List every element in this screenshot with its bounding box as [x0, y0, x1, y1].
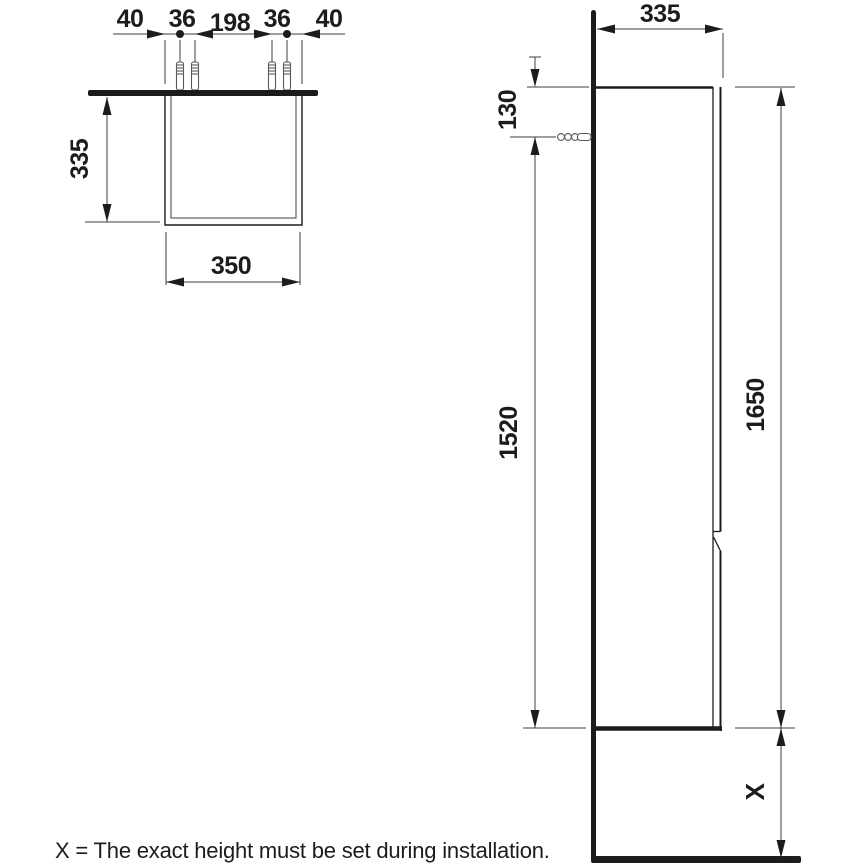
anchor-dowel	[192, 62, 199, 90]
dim-label-height-below-anchor: 1520	[495, 406, 523, 460]
arrowhead	[282, 278, 300, 287]
dim-label-plan-width: 350	[211, 252, 251, 280]
floor-clearance-dimension: X	[740, 728, 786, 858]
arrowhead	[531, 137, 540, 155]
cabinet-outline-elevation	[596, 87, 722, 731]
arrowhead	[531, 69, 540, 87]
installation-drawing: 40 36 198 36 40	[0, 0, 868, 868]
elevation-view: 335 130	[494, 0, 801, 863]
anchor-dowel	[284, 62, 291, 90]
plan-dim-chain: 40 36 198 36 40	[113, 5, 345, 84]
caption: X = The exact height must be set during …	[55, 838, 550, 863]
wall-elevation	[591, 10, 596, 860]
total-height-dimension: 1650	[735, 87, 795, 728]
arrowhead	[777, 840, 786, 858]
plan-width-dimension: 350	[166, 232, 300, 287]
dim-label-anchor-span: 198	[210, 9, 251, 37]
arrowhead	[103, 204, 112, 222]
dim-label-elevation-depth: 335	[640, 0, 681, 28]
dim-label-anchor-offset: 130	[494, 90, 522, 130]
arrowhead	[597, 25, 615, 34]
arrowhead	[531, 710, 540, 728]
arrowhead	[103, 97, 112, 115]
dim-label-right-margin: 40	[316, 5, 343, 33]
height-below-anchor-dimension: 1520	[495, 137, 586, 728]
anchor-dowel	[269, 62, 276, 90]
dim-label-floor-clearance: X	[740, 782, 770, 800]
arrowhead	[777, 710, 786, 728]
cabinet-outline-plan	[165, 96, 302, 225]
wall-anchors-plan	[177, 62, 291, 90]
arrowhead	[147, 30, 165, 39]
dim-label-anchor-pair-right: 36	[264, 5, 291, 33]
plan-view: 40 36 198 36 40	[66, 5, 345, 287]
arrowhead	[166, 278, 184, 287]
arrowhead	[777, 88, 786, 106]
arrowhead	[705, 25, 723, 34]
anchor-offset-dimension: 130	[494, 57, 589, 137]
anchor-dowel	[177, 62, 184, 90]
elevation-depth-dimension: 335	[597, 0, 723, 78]
wall-plan	[88, 90, 318, 96]
dim-label-anchor-pair-left: 36	[169, 5, 196, 33]
grip-notch-chamfer	[714, 537, 721, 551]
arrowhead	[777, 728, 786, 746]
dim-label-total-height: 1650	[742, 378, 770, 432]
floor-line	[591, 856, 801, 863]
plan-depth-dimension: 335	[66, 97, 160, 222]
technical-drawing-page: 40 36 198 36 40	[0, 0, 868, 868]
dim-label-plan-depth: 335	[66, 138, 94, 179]
dim-label-left-margin: 40	[117, 5, 144, 33]
wall-anchor-elevation	[558, 134, 591, 141]
